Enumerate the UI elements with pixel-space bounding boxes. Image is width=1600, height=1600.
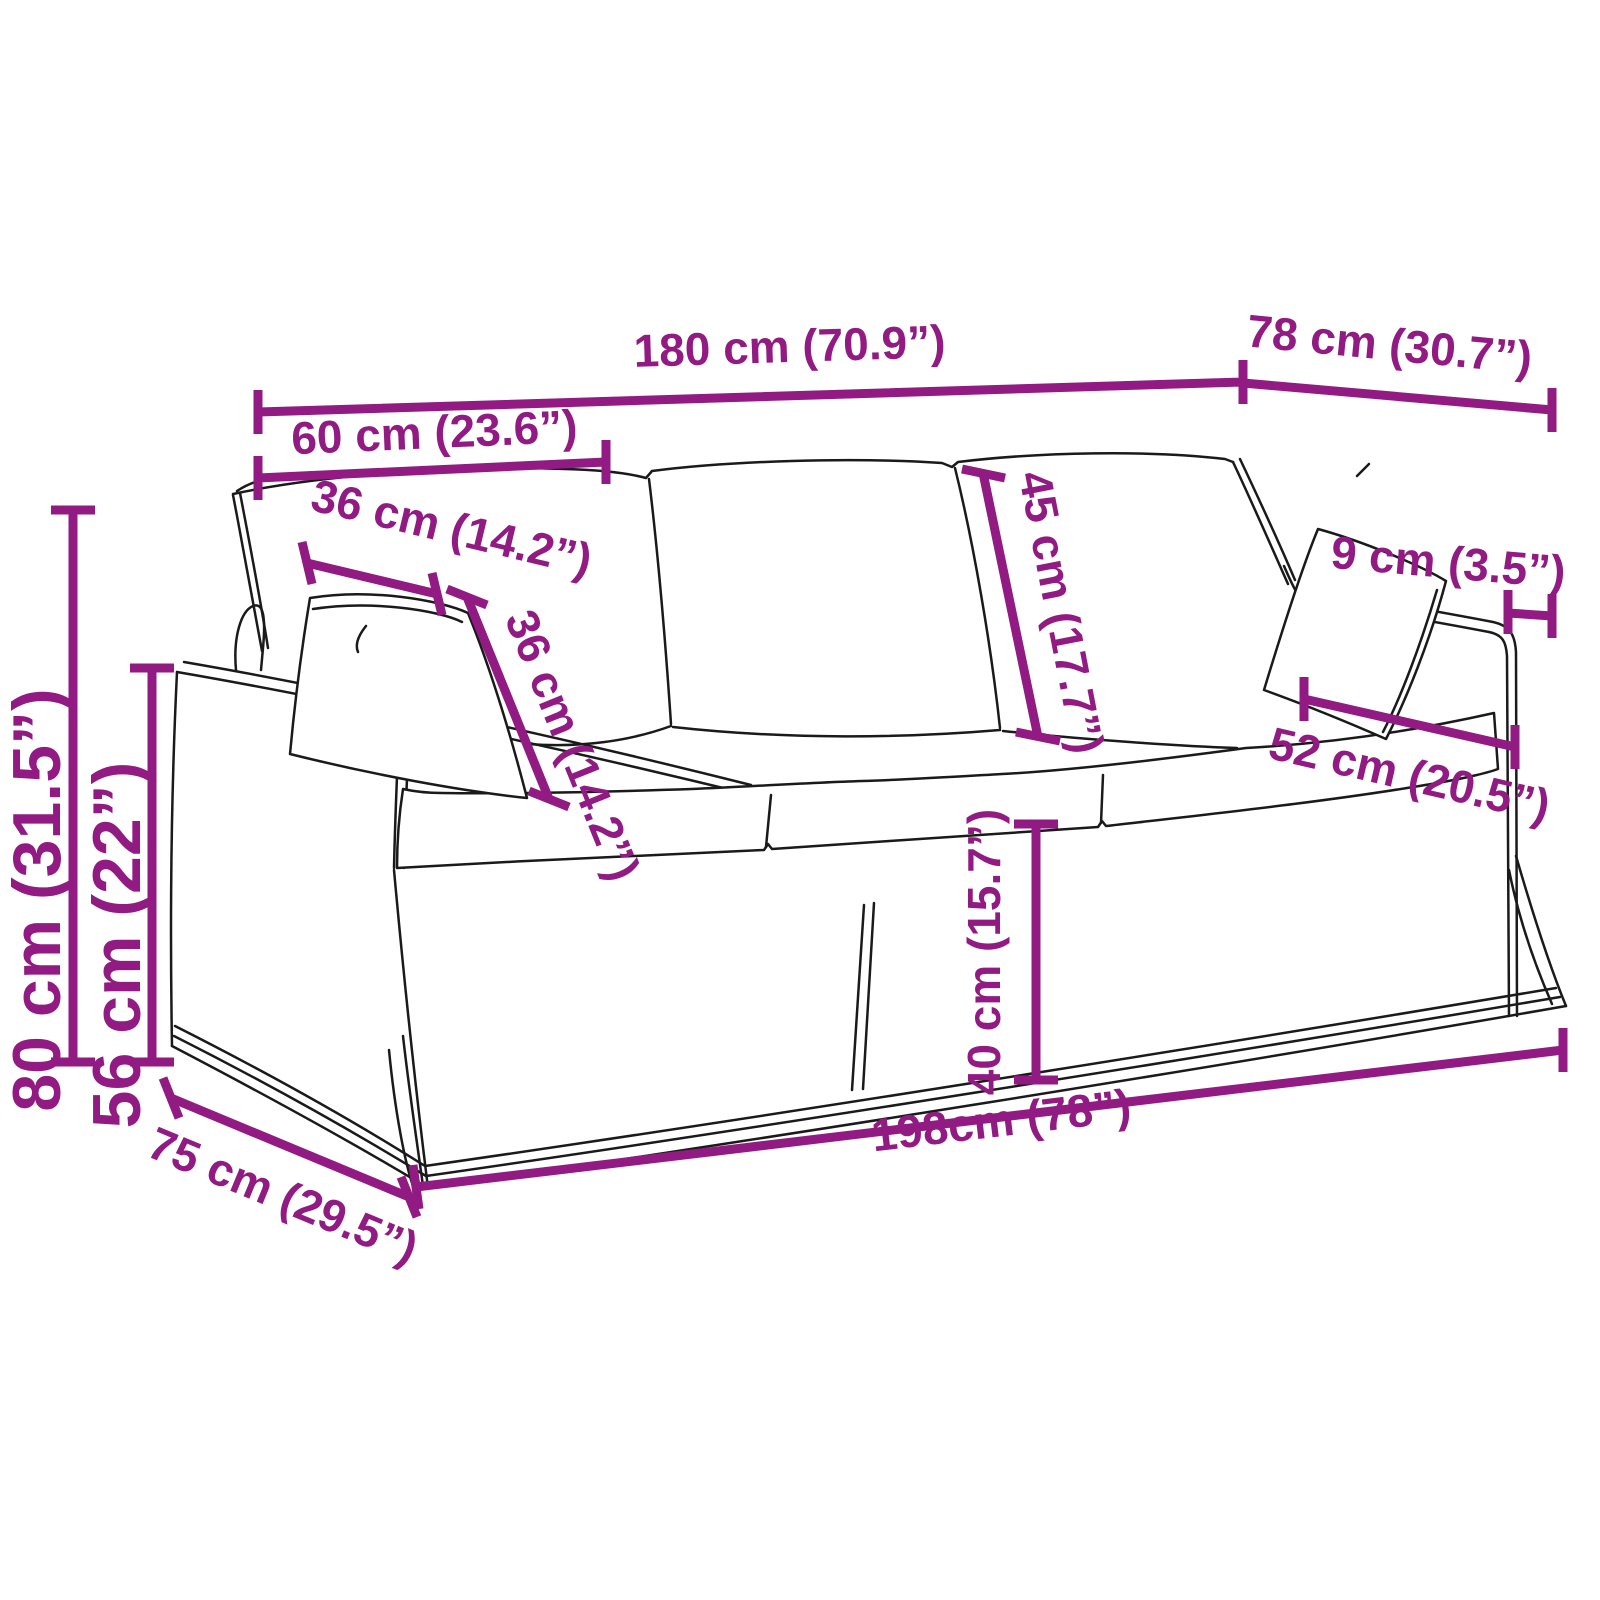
- dim-line: [1014, 824, 1058, 1080]
- dim-line: [1508, 590, 1552, 638]
- sofa-dimension-svg: 180 cm (70.9”) 78 cm (30.7”) 60 cm (23.6…: [0, 0, 1600, 1600]
- dim-seat-width-60: 60 cm (23.6”): [258, 400, 606, 500]
- left-throw-pillow: [290, 594, 527, 798]
- dim-depth-75: 75 cm (29.5”): [141, 1078, 425, 1274]
- back-right-piping: [1233, 459, 1295, 584]
- dim-seat-height-40: 40 cm (15.7”): [958, 809, 1058, 1095]
- dim-right-pillow-52: 52 cm (20.5”): [1264, 677, 1555, 832]
- dim-line: [1243, 383, 1552, 432]
- skirt-front-corner: [394, 870, 428, 1188]
- dim-label-40: 40 cm (15.7”): [958, 809, 1010, 1095]
- skirt-pleat-center: [852, 903, 874, 1090]
- skirt-bottom-edge: [172, 1006, 1566, 1188]
- dim-label-36-width: 36 cm (14.2”): [306, 469, 597, 586]
- dim-label-78: 78 cm (30.7”): [1245, 304, 1535, 383]
- dim-label-45: 45 cm (17.7”): [1009, 466, 1115, 757]
- dim-label-60: 60 cm (23.6”): [290, 400, 578, 464]
- back-cushion-crease: [1357, 464, 1369, 476]
- dim-label-56: 56 cm (22”): [79, 762, 155, 1129]
- dim-label-80: 80 cm (31.5”): [0, 688, 75, 1111]
- dim-depth-78: 78 cm (30.7”): [1243, 304, 1552, 432]
- sofa-dimension-diagram: 180 cm (70.9”) 78 cm (30.7”) 60 cm (23.6…: [0, 0, 1600, 1600]
- back-cushion-bottom-edges: [528, 726, 1237, 748]
- dim-label-180: 180 cm (70.9”): [633, 315, 946, 377]
- back-cushion-seam-left: [649, 479, 671, 724]
- left-arm-outer-edge: [171, 672, 177, 1046]
- dim-arm-height-56: 56 cm (22”): [79, 668, 174, 1128]
